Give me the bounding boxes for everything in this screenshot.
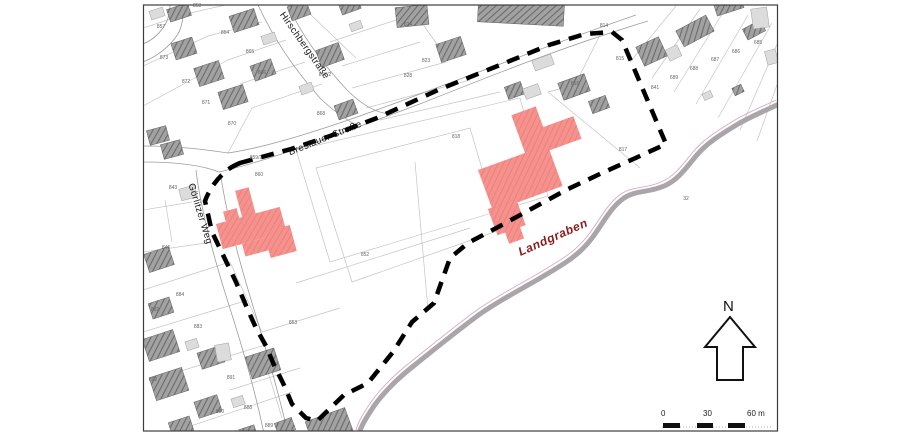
parcel-label: 815 (616, 56, 624, 62)
parcel-label: 688 (690, 66, 698, 72)
parcel-label: 868 (317, 111, 325, 117)
parcel-label: 685 (754, 40, 762, 46)
parcel-label: 32 (683, 196, 689, 202)
scale-tick-60m: 60 m (747, 409, 765, 418)
parcel-label: 823 (422, 58, 430, 64)
parcel-label: 891 (227, 375, 235, 381)
parcel-label: 884 (176, 292, 184, 298)
parcel-label: 890 (216, 409, 224, 415)
scale-tick-30: 30 (703, 409, 712, 418)
parcel-label: 828 (404, 73, 412, 79)
parcel-label: 858 (193, 3, 201, 9)
stream-band (359, 104, 779, 434)
stream-landgraben (356, 100, 779, 434)
parcel-label: 687 (711, 57, 719, 63)
parcel-label: 841 (651, 85, 659, 91)
north-arrow (705, 317, 755, 380)
parcel-label: 872 (182, 79, 190, 85)
parcel-label: 859/1 (250, 155, 263, 161)
parcel-label: 892 (149, 377, 157, 383)
parcel-label: 816 (571, 81, 579, 87)
parcel-label: 818 (452, 134, 460, 140)
parcel-label: 873 (160, 55, 168, 61)
parcel-label: 853 (289, 320, 297, 326)
map-svg (0, 0, 920, 438)
parcel-label: 824 (404, 22, 412, 28)
parcel-label: 846 (162, 245, 170, 251)
north-label: N (723, 298, 734, 315)
scale-tick-0: 0 (661, 409, 665, 418)
parcel-label: 889 (265, 423, 273, 429)
parcel-label: 852 (361, 252, 369, 258)
parcel-label: 888 (244, 405, 252, 411)
parcel-label: 865 (246, 49, 254, 55)
parcel-label: 689 (670, 75, 678, 81)
parcel-label: 686 (732, 49, 740, 55)
parcel-label: 814 (600, 23, 608, 29)
parcel-label: 864 (221, 30, 229, 36)
scale-bar (662, 423, 772, 428)
parcel-label: 870 (228, 121, 236, 127)
parcel-label: 860 (255, 172, 263, 178)
site-plan-canvas: Hirschbergstraße Breslauer Straße Görlit… (0, 0, 920, 438)
parcel-label: 871 (202, 100, 210, 106)
parcel-label: 857 (157, 24, 165, 30)
parcel-label: 843 (169, 185, 177, 191)
parcel-label: 866 (258, 70, 266, 76)
parcel-label: 882 (151, 307, 159, 313)
parcel-label: 883 (194, 324, 202, 330)
parcel-label: 817 (619, 147, 627, 153)
parcel-label: 867/2 (319, 72, 332, 78)
